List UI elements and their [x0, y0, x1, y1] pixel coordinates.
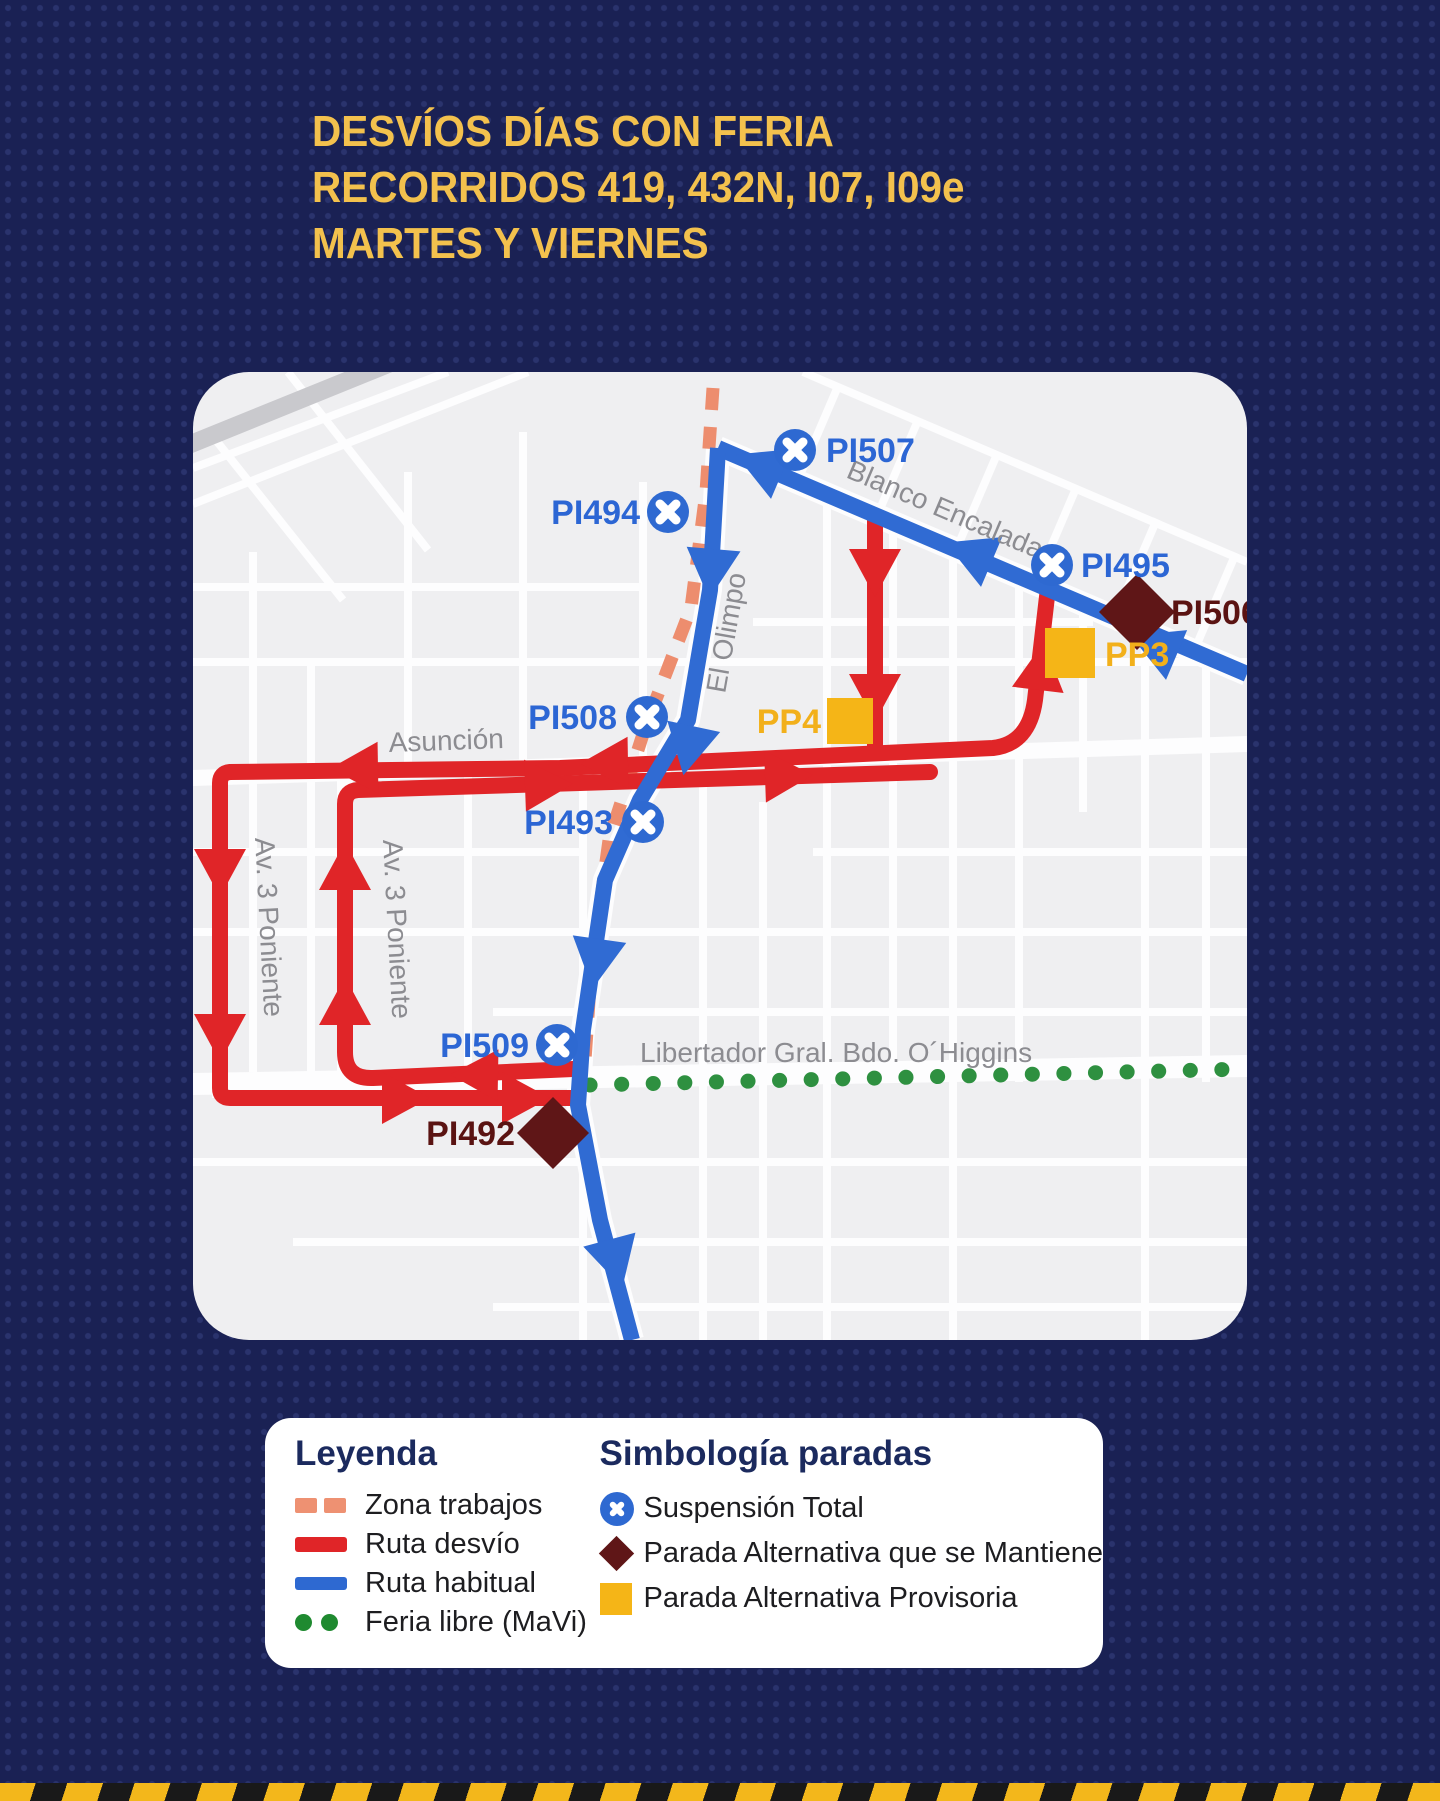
legend-panel: Leyenda Zona trabajos Ruta desvío Ruta h…: [265, 1418, 1103, 1668]
maintained-stop-icon: [600, 1541, 644, 1566]
stop-label-pi507: PI507: [826, 432, 915, 470]
page-title: DESVÍOS DÍAS CON FERIA RECORRIDOS 419, 4…: [312, 104, 964, 272]
work-zone-swatch: [295, 1498, 351, 1513]
stop-label-pp3: PP3: [1105, 636, 1169, 674]
stop-label-pi494: PI494: [551, 494, 640, 532]
stop-marker-pi508: [626, 696, 668, 738]
detour-route-swatch: [295, 1537, 351, 1552]
legend-item-label: Ruta habitual: [365, 1567, 536, 1600]
symbology-item-label: Suspensión Total: [644, 1492, 864, 1525]
legend-item-feria-libre: Feria libre (MaVi): [295, 1603, 600, 1642]
stop-marker-pp3: [1045, 628, 1095, 678]
hazard-stripe: [0, 1783, 1440, 1801]
symbology-item-label: Parada Alternativa que se Mantiene: [644, 1537, 1103, 1570]
symbology-item-provisoria: Parada Alternativa Provisoria: [600, 1576, 1103, 1621]
stop-label-pi509: PI509: [440, 1027, 529, 1065]
legend-item-label: Feria libre (MaVi): [365, 1606, 587, 1639]
legend-item-label: Ruta desvío: [365, 1528, 520, 1561]
legend-item-ruta-habitual: Ruta habitual: [295, 1564, 600, 1603]
stop-marker-pi495: [1031, 544, 1073, 586]
stop-label-pi493: PI493: [524, 804, 613, 842]
symbology-item-label: Parada Alternativa Provisoria: [644, 1582, 1018, 1615]
habitual-route-swatch: [295, 1577, 351, 1590]
map-canvas: Blanco Encalada El Olimpo Asunción Av. 3…: [193, 372, 1247, 1340]
symbology-column: Simbología paradas Suspensión Total Para…: [600, 1434, 1103, 1668]
symbology-title: Simbología paradas: [600, 1434, 1103, 1474]
street-label-av3-poniente-east: Av. 3 Poniente: [377, 839, 417, 1020]
legend-item-ruta-desvio: Ruta desvío: [295, 1525, 600, 1564]
legend-item-zona-trabajos: Zona trabajos: [295, 1486, 600, 1525]
symbology-item-suspension: Suspensión Total: [600, 1486, 1103, 1531]
legend-item-label: Zona trabajos: [365, 1489, 542, 1522]
detour-infographic: { "title": { "line1": "DESVÍOS DÍAS CON …: [0, 0, 1440, 1801]
legend-title: Leyenda: [295, 1434, 600, 1474]
stop-marker-pi493: [622, 801, 664, 843]
stop-label-pi506: PI506: [1171, 594, 1247, 632]
symbology-item-mantiene: Parada Alternativa que se Mantiene: [600, 1531, 1103, 1576]
street-label-asuncion: Asunción: [388, 723, 504, 758]
provisional-stop-icon: [600, 1583, 644, 1615]
suspension-total-icon: [600, 1492, 644, 1526]
detour-map: Blanco Encalada El Olimpo Asunción Av. 3…: [193, 372, 1247, 1340]
legend-column: Leyenda Zona trabajos Ruta desvío Ruta h…: [295, 1434, 600, 1668]
stop-label-pi508: PI508: [528, 699, 617, 737]
stop-marker-pi507: [774, 429, 816, 471]
stop-marker-pi494: [647, 491, 689, 533]
title-line-3: MARTES Y VIERNES: [312, 216, 964, 272]
street-label-libertador: Libertador Gral. Bdo. O´Higgins: [640, 1037, 1032, 1068]
stop-label-pp4: PP4: [757, 703, 821, 741]
stop-label-pi492: PI492: [426, 1115, 515, 1153]
stop-marker-pp4: [827, 698, 873, 744]
title-line-2: RECORRIDOS 419, 432N, I07, I09e: [312, 160, 964, 216]
stop-marker-pi509: [536, 1024, 578, 1066]
stop-label-pi495: PI495: [1081, 547, 1170, 585]
feria-libre-swatch: [295, 1614, 351, 1631]
title-line-1: DESVÍOS DÍAS CON FERIA: [312, 104, 964, 160]
